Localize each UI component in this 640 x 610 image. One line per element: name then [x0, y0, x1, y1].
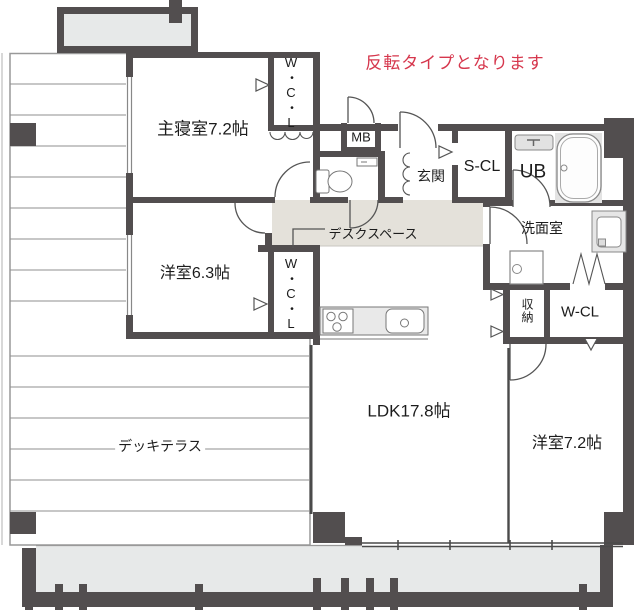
floor-plan: 反転タイプとなります 主寝室7.2帖 洋室6.3帖 洋室7.2帖 LDK17.8…	[0, 0, 640, 610]
storage-opening-icon-top	[491, 289, 503, 300]
bathtub	[557, 134, 601, 202]
kitchen-sink	[386, 309, 424, 333]
kitchen	[320, 307, 428, 339]
room-label-western-6-3: 洋室6.3帖	[160, 266, 230, 282]
walls	[10, 0, 634, 610]
toilet-bowl	[328, 171, 352, 192]
entrance-door	[400, 112, 436, 148]
note-reversed-type: 反転タイプとなります	[365, 55, 545, 72]
wcl-master-folding-doors	[270, 132, 313, 140]
room-label-deck-terrace: デッキテラス	[115, 439, 205, 453]
toilet-tank	[316, 170, 329, 193]
label-wcl-master: W・C・L	[285, 55, 298, 131]
room-label-entrance: 玄関	[417, 169, 445, 183]
label-meter-box: MB	[351, 131, 371, 144]
shoe-closet-opening-icon	[439, 146, 452, 158]
label-shoe-closet: S-CL	[464, 159, 500, 175]
label-wcl-right: W-CL	[561, 305, 599, 320]
western-room-6-3-door	[235, 203, 265, 233]
wcl-right-bifold-door	[573, 254, 605, 284]
room-label-western-7-2: 洋室7.2帖	[532, 436, 602, 452]
wcl-master-opening-icon	[256, 79, 269, 91]
floor-plan-svg	[0, 0, 640, 610]
label-desk-space: デスクスペース	[328, 228, 417, 241]
label-wcl-6-3: W・C・L	[285, 256, 298, 332]
wcl-63-opening-icon	[254, 298, 267, 310]
meter-box-door	[348, 97, 374, 123]
deck-terrace-floor	[2, 53, 310, 545]
master-bedroom-door	[275, 162, 310, 197]
label-storage: 収納	[521, 298, 533, 324]
label-unit-bath: UB	[520, 163, 546, 182]
western-room-7-2-door	[510, 344, 546, 380]
washing-machine-space	[510, 251, 543, 284]
room-label-washroom: 洗面室	[521, 221, 563, 235]
storage-opening-icon-bottom	[491, 326, 503, 337]
room-label-master-bedroom: 主寝室7.2帖	[157, 121, 249, 138]
toilet-fixtures	[316, 158, 377, 193]
entrance-step-scallops	[403, 153, 410, 195]
room-label-ldk: LDK17.8帖	[367, 403, 450, 420]
wcl-right-door-mark	[585, 339, 597, 350]
